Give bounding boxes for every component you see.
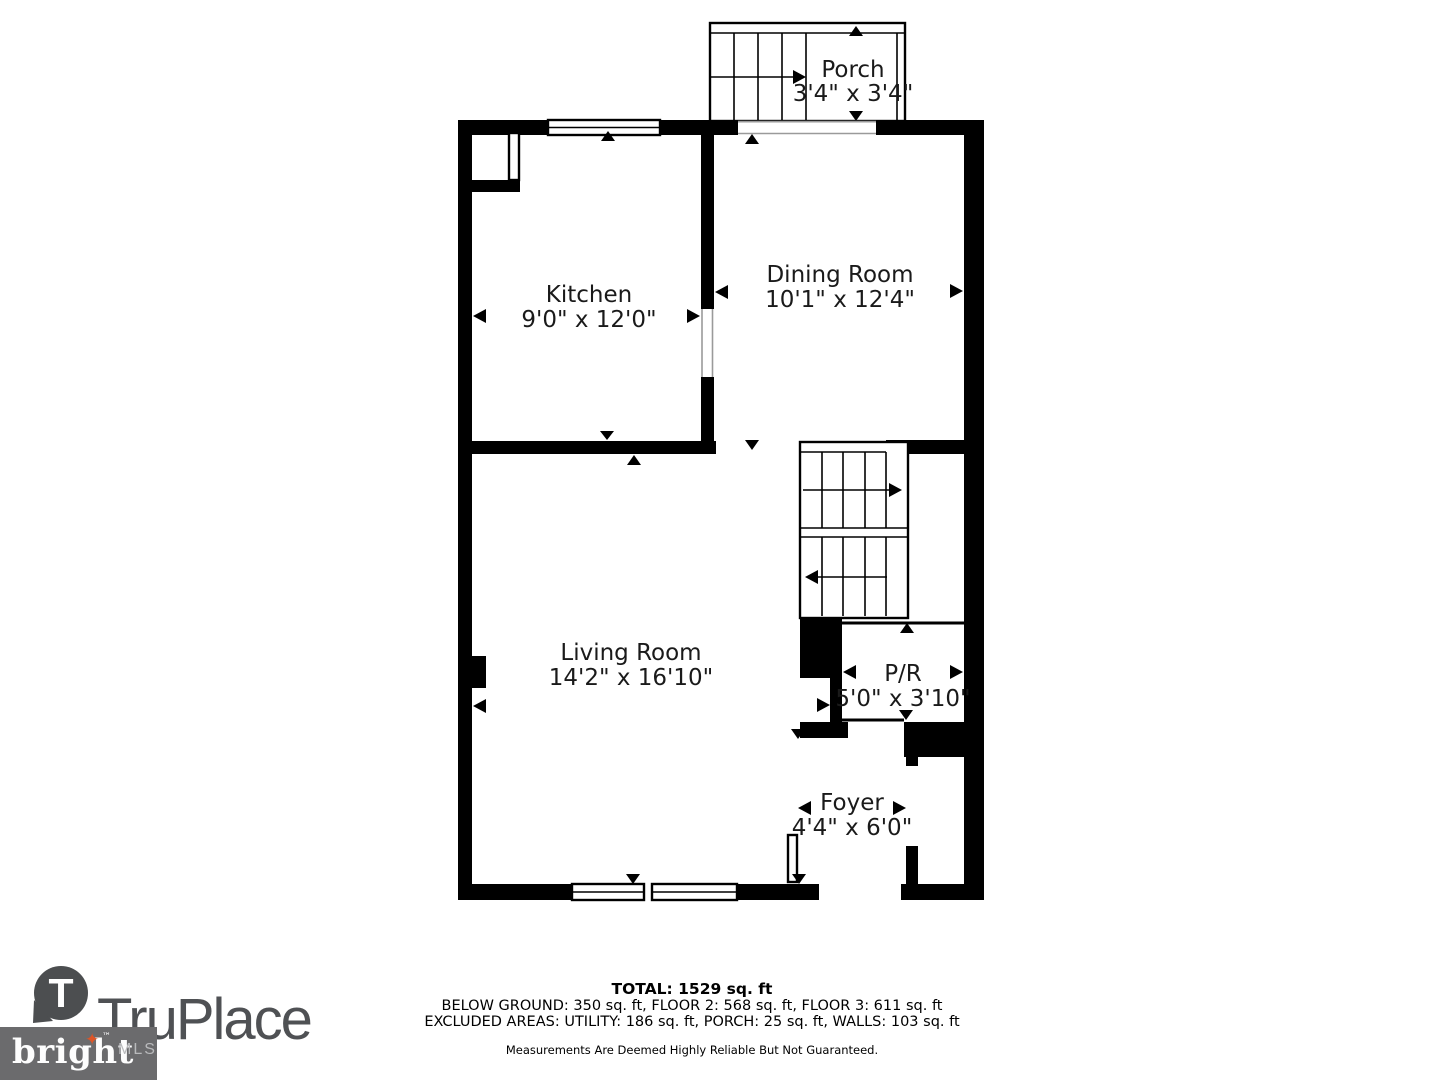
porch: Porch 3'4" x 3'4" — [710, 23, 913, 121]
dimension-arrow-left — [473, 309, 486, 323]
wall-foyer-right — [906, 722, 918, 766]
dimension-arrow-up — [627, 455, 641, 465]
wall-foyer-right — [906, 846, 918, 898]
wall-bottom — [735, 884, 819, 900]
room-dims-kitchen: 9'0" x 12'0" — [521, 307, 656, 333]
room-label-living: Living Room — [560, 640, 701, 666]
wall-kitchen-living — [470, 441, 716, 454]
stairs-outline — [800, 442, 908, 618]
dimension-arrow-left — [843, 665, 856, 679]
wall-top — [458, 120, 550, 135]
dimension-arrow-right — [687, 309, 700, 323]
bright-mls-text: MLS — [118, 1041, 157, 1059]
room-dims-porch: 3'4" x 3'4" — [793, 81, 914, 107]
dimension-arrow-right — [817, 698, 830, 712]
dimension-arrow-up — [745, 134, 759, 144]
room-label-foyer: Foyer — [820, 790, 884, 816]
room-dims-powder: 5'0" x 3'10" — [835, 686, 970, 712]
wall-under-stairs — [800, 616, 842, 678]
wall-kitchen-dining — [701, 377, 714, 444]
room-label-porch: Porch — [821, 57, 884, 83]
dimension-arrow-right — [950, 665, 963, 679]
bright-wordmark: bright — [12, 1032, 134, 1072]
stairs — [800, 442, 908, 618]
dimension-arrow-left — [715, 285, 728, 299]
room-dims-living: 14'2" x 16'10" — [549, 665, 713, 691]
wall-foyer-left — [800, 722, 848, 738]
wall-pilaster — [472, 656, 486, 688]
wall-top — [658, 120, 738, 135]
dimension-arrow-down — [745, 440, 759, 450]
floorplan-drawing: Porch 3'4" x 3'4" — [0, 0, 1440, 1080]
wall-top — [876, 120, 984, 135]
dimension-arrow-down — [600, 431, 614, 440]
wall-closet-stub — [470, 180, 520, 192]
dimension-arrow-down — [626, 874, 640, 884]
dimension-arrow-right — [950, 284, 963, 298]
room-label-kitchen: Kitchen — [546, 282, 632, 308]
bright-trademark: ™ — [102, 1032, 111, 1042]
wall-right — [964, 120, 984, 900]
room-dims-foyer: 4'4" x 6'0" — [792, 815, 913, 841]
wall-bottom — [458, 884, 572, 900]
dimension-arrow-left — [798, 801, 811, 815]
closet-door-leaf — [509, 133, 519, 180]
room-dims-dining: 10'1" x 12'4" — [765, 287, 915, 313]
dimension-arrow-right — [893, 801, 906, 815]
dimension-arrow-left — [473, 699, 486, 713]
room-label-powder: P/R — [884, 661, 922, 687]
room-label-dining: Dining Room — [766, 262, 913, 288]
bright-star-icon: ✦ — [85, 1030, 99, 1050]
wall-left — [458, 120, 472, 900]
wall-kitchen-dining — [701, 133, 714, 309]
